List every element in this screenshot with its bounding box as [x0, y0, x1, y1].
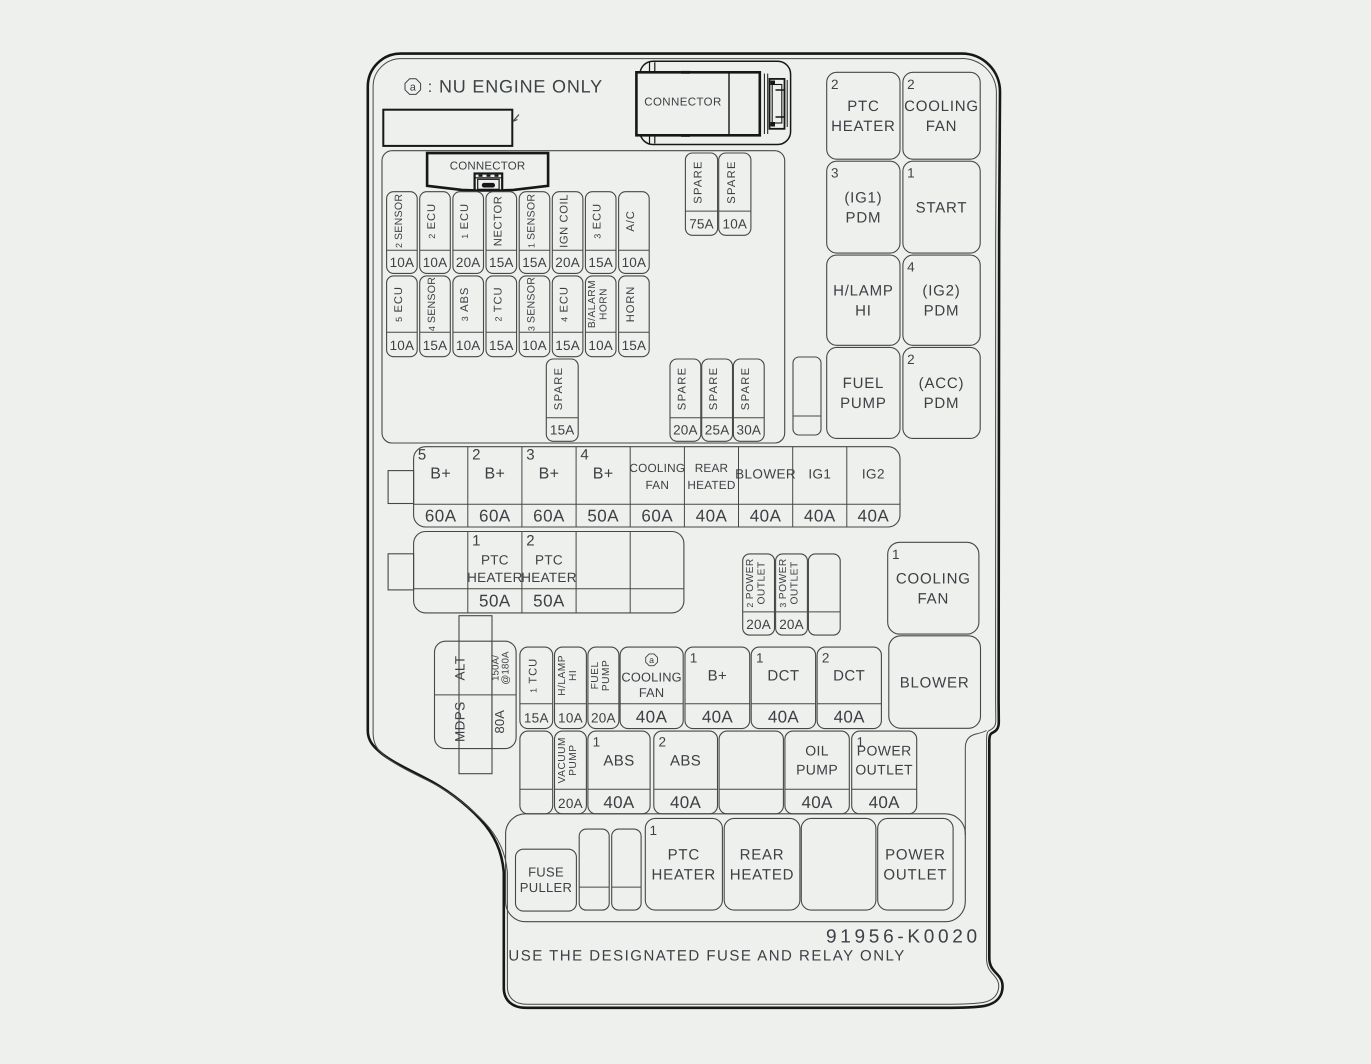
svg-text:OUTLET: OUTLET — [883, 866, 947, 883]
svg-text:FAN: FAN — [639, 685, 665, 700]
svg-text:REAR: REAR — [695, 461, 729, 475]
svg-text:15A: 15A — [588, 255, 613, 270]
svg-text:60A: 60A — [533, 507, 565, 526]
svg-text:ALT: ALT — [453, 656, 468, 681]
svg-text:IG1: IG1 — [808, 467, 831, 482]
svg-text:1: 1 — [756, 651, 764, 666]
svg-text:USE THE DESIGNATED FUSE AND RE: USE THE DESIGNATED FUSE AND RELAY ONLY — [508, 948, 905, 965]
svg-text:5 ECU: 5 ECU — [393, 286, 405, 322]
svg-text:2: 2 — [472, 447, 480, 464]
svg-text:SPARE: SPARE — [726, 160, 738, 204]
svg-text:COOLING: COOLING — [629, 461, 685, 475]
svg-text:PUMP: PUMP — [601, 660, 612, 691]
svg-text:20A: 20A — [558, 796, 583, 811]
svg-text:B+: B+ — [430, 466, 451, 483]
svg-text:1: 1 — [690, 651, 698, 666]
svg-text:10A: 10A — [722, 216, 747, 231]
svg-text:DCT: DCT — [833, 668, 865, 685]
svg-text:B/ALARM: B/ALARM — [587, 280, 598, 328]
svg-text:15A: 15A — [489, 338, 514, 353]
svg-text:OUTLET: OUTLET — [756, 561, 767, 604]
svg-text:H/LAMP: H/LAMP — [557, 655, 568, 696]
svg-text:1: 1 — [856, 735, 864, 750]
svg-text:50A: 50A — [587, 507, 619, 526]
svg-text:3 POWER: 3 POWER — [778, 558, 789, 607]
svg-text:3 SENSOR: 3 SENSOR — [526, 277, 538, 331]
svg-text:CONNECTOR: CONNECTOR — [450, 160, 526, 172]
svg-text:3: 3 — [831, 166, 839, 181]
svg-text:ABS: ABS — [603, 753, 634, 770]
svg-text:OUTLET: OUTLET — [789, 561, 800, 604]
svg-text:2: 2 — [907, 352, 915, 367]
svg-text:POWER: POWER — [857, 743, 912, 759]
svg-text:B+: B+ — [593, 466, 614, 483]
svg-text:15A: 15A — [524, 711, 549, 726]
svg-text:15A: 15A — [550, 423, 575, 438]
svg-text:20A: 20A — [746, 617, 771, 632]
svg-text:15A: 15A — [522, 255, 547, 270]
svg-text:15A: 15A — [423, 338, 448, 353]
svg-text:40A: 40A — [869, 793, 901, 812]
svg-text:PULLER: PULLER — [520, 880, 572, 895]
svg-text:PTC: PTC — [481, 553, 509, 568]
svg-text:a: a — [410, 81, 417, 93]
svg-text:40A: 40A — [670, 793, 702, 812]
svg-text:COOLING: COOLING — [621, 670, 681, 685]
svg-text:60A: 60A — [479, 507, 511, 526]
svg-text:SPARE: SPARE — [708, 367, 720, 411]
svg-text:FUEL: FUEL — [843, 375, 885, 392]
svg-text:FAN: FAN — [918, 590, 950, 607]
svg-text:40A: 40A — [804, 507, 836, 526]
svg-text:FAN: FAN — [926, 118, 958, 135]
svg-text:IG2: IG2 — [862, 467, 885, 482]
svg-text:a: a — [649, 655, 654, 665]
svg-text:HEATER: HEATER — [467, 570, 523, 585]
svg-text:60A: 60A — [425, 507, 457, 526]
svg-text:4 ECU: 4 ECU — [559, 286, 571, 322]
svg-text:10A: 10A — [622, 255, 647, 270]
svg-text:2: 2 — [831, 77, 839, 92]
svg-text:H/LAMP: H/LAMP — [833, 283, 894, 300]
svg-text:BLOWER: BLOWER — [900, 674, 970, 691]
svg-text:PUMP: PUMP — [796, 762, 838, 778]
svg-text:10A: 10A — [423, 255, 448, 270]
svg-text:60A: 60A — [641, 507, 673, 526]
svg-text:3 ABS: 3 ABS — [459, 287, 471, 321]
svg-text:15A: 15A — [555, 338, 580, 353]
svg-text:(IG2): (IG2) — [922, 283, 960, 300]
svg-text:START: START — [916, 199, 968, 216]
svg-text:BLOWER: BLOWER — [735, 467, 796, 482]
svg-text:1: 1 — [907, 166, 915, 181]
svg-text:2 SENSOR: 2 SENSOR — [393, 194, 405, 248]
svg-text:HEATER: HEATER — [521, 570, 577, 585]
svg-text:20A: 20A — [555, 255, 580, 270]
svg-text:2: 2 — [526, 533, 534, 550]
svg-text:FUEL: FUEL — [590, 661, 601, 689]
svg-text:40A: 40A — [768, 708, 800, 727]
svg-text:40A: 40A — [834, 708, 866, 727]
svg-text:PUMP: PUMP — [840, 395, 887, 412]
svg-text:(ACC): (ACC) — [919, 375, 965, 392]
svg-text:A/C: A/C — [625, 210, 637, 231]
svg-text:10A: 10A — [588, 338, 613, 353]
svg-text:B+: B+ — [484, 466, 505, 483]
svg-text:COOLING: COOLING — [904, 98, 979, 115]
svg-text:4: 4 — [580, 447, 588, 464]
svg-text:5: 5 — [418, 447, 426, 464]
svg-text:1: 1 — [650, 823, 658, 838]
svg-text:HEATER: HEATER — [652, 866, 717, 883]
svg-text:40A: 40A — [750, 507, 782, 526]
svg-text:SPARE: SPARE — [693, 160, 705, 204]
svg-text:DCT: DCT — [767, 668, 799, 685]
svg-text:15A: 15A — [489, 255, 514, 270]
svg-text:10A: 10A — [558, 711, 583, 726]
svg-text:MDPS: MDPS — [453, 701, 468, 742]
svg-text:HEATED: HEATED — [730, 866, 795, 883]
svg-text:20A: 20A — [779, 617, 804, 632]
svg-text:3 ECU: 3 ECU — [592, 203, 604, 239]
svg-text:40A: 40A — [802, 793, 834, 812]
svg-text:PUMP: PUMP — [568, 744, 579, 775]
svg-text:NU ENGINE ONLY: NU ENGINE ONLY — [439, 77, 603, 97]
svg-text:PDM: PDM — [924, 395, 960, 412]
svg-text:2 POWER: 2 POWER — [745, 558, 756, 607]
svg-text:HEATER: HEATER — [831, 118, 896, 135]
svg-text:2 TCU: 2 TCU — [492, 286, 504, 321]
svg-text:COOLING: COOLING — [896, 571, 971, 588]
svg-text:PTC: PTC — [847, 98, 879, 115]
svg-text:91956-K0020: 91956-K0020 — [826, 927, 981, 948]
svg-text:VACUUM: VACUUM — [557, 737, 568, 783]
svg-text:PDM: PDM — [846, 209, 882, 226]
svg-text:75A: 75A — [689, 216, 714, 231]
svg-text:40A: 40A — [636, 708, 668, 727]
svg-text:FAN: FAN — [646, 478, 670, 492]
svg-text:10A: 10A — [390, 338, 415, 353]
svg-text:PDM: PDM — [924, 302, 960, 319]
svg-text:2: 2 — [659, 735, 667, 750]
svg-text:80A: 80A — [492, 710, 507, 734]
svg-text:OIL: OIL — [805, 743, 829, 759]
svg-text:B+: B+ — [539, 466, 560, 483]
svg-text:2: 2 — [907, 77, 915, 92]
svg-text:20A: 20A — [673, 423, 698, 438]
svg-text:1 ECU: 1 ECU — [459, 203, 471, 239]
svg-text:4 SENSOR: 4 SENSOR — [426, 277, 438, 331]
svg-text:10A: 10A — [390, 255, 415, 270]
svg-text:FUSE: FUSE — [528, 865, 564, 880]
svg-text:40A: 40A — [702, 708, 734, 727]
svg-text:HI: HI — [568, 670, 579, 681]
svg-text:REAR: REAR — [740, 847, 785, 864]
svg-text:10A: 10A — [456, 338, 481, 353]
svg-text:POWER: POWER — [885, 847, 946, 864]
svg-text:SPARE: SPARE — [676, 367, 688, 411]
svg-text:40A: 40A — [696, 507, 728, 526]
svg-text:HORN: HORN — [599, 288, 610, 320]
svg-text:25A: 25A — [705, 423, 730, 438]
svg-text:OUTLET: OUTLET — [855, 762, 913, 778]
svg-text:HI: HI — [855, 302, 872, 319]
svg-text:PTC: PTC — [535, 553, 563, 568]
svg-text:B+: B+ — [708, 668, 728, 685]
svg-text:4: 4 — [907, 260, 915, 275]
svg-text:3: 3 — [526, 447, 534, 464]
svg-text:HEATED: HEATED — [687, 478, 735, 492]
svg-text:50A: 50A — [533, 592, 565, 611]
svg-text:PTC: PTC — [668, 847, 700, 864]
svg-text:1 TCU: 1 TCU — [527, 658, 539, 693]
svg-text:@180A: @180A — [501, 651, 512, 685]
svg-text:40A: 40A — [858, 507, 890, 526]
svg-text:2 ECU: 2 ECU — [426, 203, 438, 239]
svg-text:20A: 20A — [591, 711, 616, 726]
svg-text:NECTOR: NECTOR — [492, 196, 504, 247]
svg-text:15A: 15A — [622, 338, 647, 353]
svg-text::: : — [428, 79, 432, 96]
svg-text:10A: 10A — [522, 338, 547, 353]
svg-text:30A: 30A — [736, 423, 761, 438]
svg-text:SPARE: SPARE — [740, 367, 752, 411]
svg-text:(IG1): (IG1) — [844, 190, 882, 207]
svg-text:20A: 20A — [456, 255, 481, 270]
svg-text:1: 1 — [472, 533, 480, 550]
svg-text:ABS: ABS — [670, 753, 701, 770]
svg-text:1: 1 — [892, 547, 900, 562]
svg-text:40A: 40A — [603, 793, 635, 812]
svg-text:1: 1 — [593, 735, 601, 750]
svg-text:2: 2 — [822, 651, 830, 666]
svg-text:HORN: HORN — [625, 286, 637, 323]
svg-text:CONNECTOR: CONNECTOR — [644, 96, 722, 108]
svg-text:SPARE: SPARE — [553, 367, 565, 411]
svg-text:1 SENSOR: 1 SENSOR — [526, 194, 538, 248]
svg-text:IGN COIL: IGN COIL — [559, 194, 571, 248]
svg-text:50A: 50A — [479, 592, 511, 611]
